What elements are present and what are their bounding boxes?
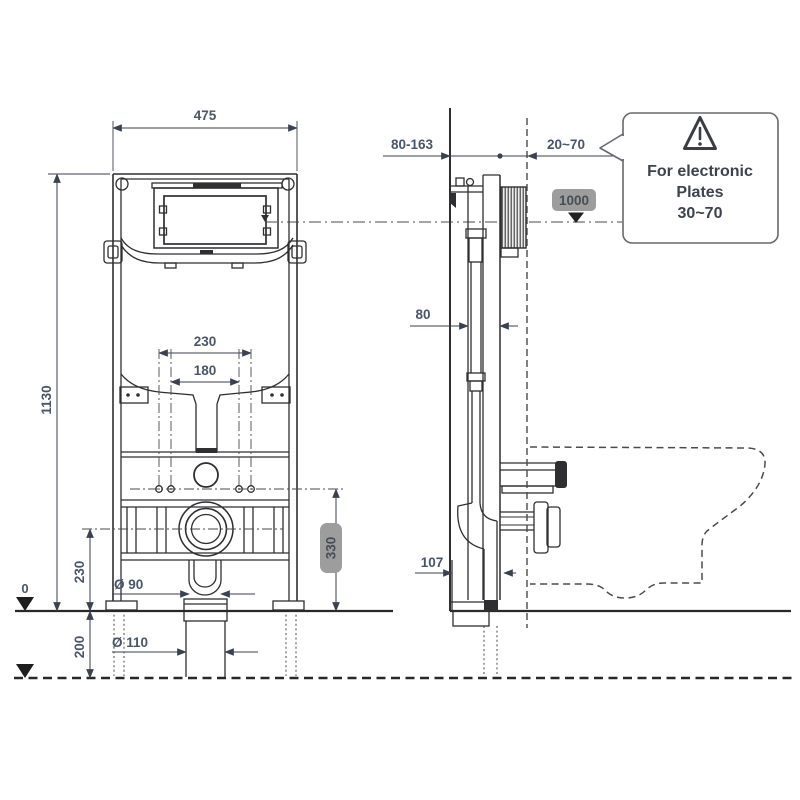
cistern-frame-technical-drawing: 330 1000 For electronic Plates 30~70 475… (0, 0, 800, 800)
floor-datum-triangle-icon (16, 597, 34, 611)
badge-1000-label: 1000 (559, 193, 589, 208)
callout-line-2: Plates (676, 184, 723, 201)
flush-plate-access (152, 183, 282, 248)
dim-flush-pipe-dia-label: Ø 90 (114, 577, 143, 592)
badge-330-label: 330 (324, 537, 339, 560)
dim-below-floor-label: 200 (72, 636, 87, 659)
callout-line-1: For electronic (647, 163, 753, 180)
dimension-lines (48, 121, 622, 678)
drain-elbow (458, 503, 497, 600)
floor-datum-label: 0 (21, 581, 28, 596)
flush-bend (184, 560, 227, 677)
water-level-marker-icon (261, 215, 269, 222)
height-badge-330: 330 (320, 523, 342, 573)
drain-flange (179, 502, 233, 556)
callout-bubble: For electronic Plates 30~70 (600, 113, 778, 243)
drain-connector (500, 502, 560, 553)
mounting-hole-left (116, 178, 128, 190)
mounting-hole-right (282, 178, 294, 190)
dim-inner-spacing-label: 180 (194, 363, 217, 378)
badge-1000-pointer-icon (568, 213, 584, 224)
dim-frame-depth-label: 80 (415, 307, 430, 322)
installation-drawing-page: 330 1000 For electronic Plates 30~70 475… (0, 0, 800, 800)
side-frame-profile (468, 175, 500, 600)
callout-line-3: 30~70 (678, 205, 723, 222)
dim-wall-range-label: 80-163 (391, 137, 434, 152)
dim-outlet-height-label: 230 (72, 561, 87, 584)
flush-plate-housing-hatched (501, 187, 526, 248)
dim-drain-pipe-dia-label: Ø 110 (112, 635, 148, 650)
tank-bottom-funnel (121, 374, 289, 453)
flush-pipe-side (467, 262, 485, 503)
dim-outlet-offset-label: 107 (421, 555, 444, 570)
height-badge-1000: 1000 (552, 189, 596, 223)
wall-bracket (450, 178, 483, 208)
tank-shoulders (104, 238, 306, 268)
front-view (104, 174, 306, 677)
side-foot (450, 560, 498, 626)
dim-width-label: 475 (194, 108, 217, 123)
dim-plate-range-label: 20~70 (547, 137, 585, 152)
dim-stud-spacing-label: 230 (194, 334, 217, 349)
inlet-pipe (500, 461, 567, 493)
fill-valve-port (194, 463, 218, 487)
side-view (450, 108, 567, 626)
dim-height-label: 1130 (39, 385, 54, 414)
subfloor-datum-triangle-icon (16, 664, 34, 678)
leg-projections (114, 610, 497, 676)
frame-feet (106, 601, 304, 610)
